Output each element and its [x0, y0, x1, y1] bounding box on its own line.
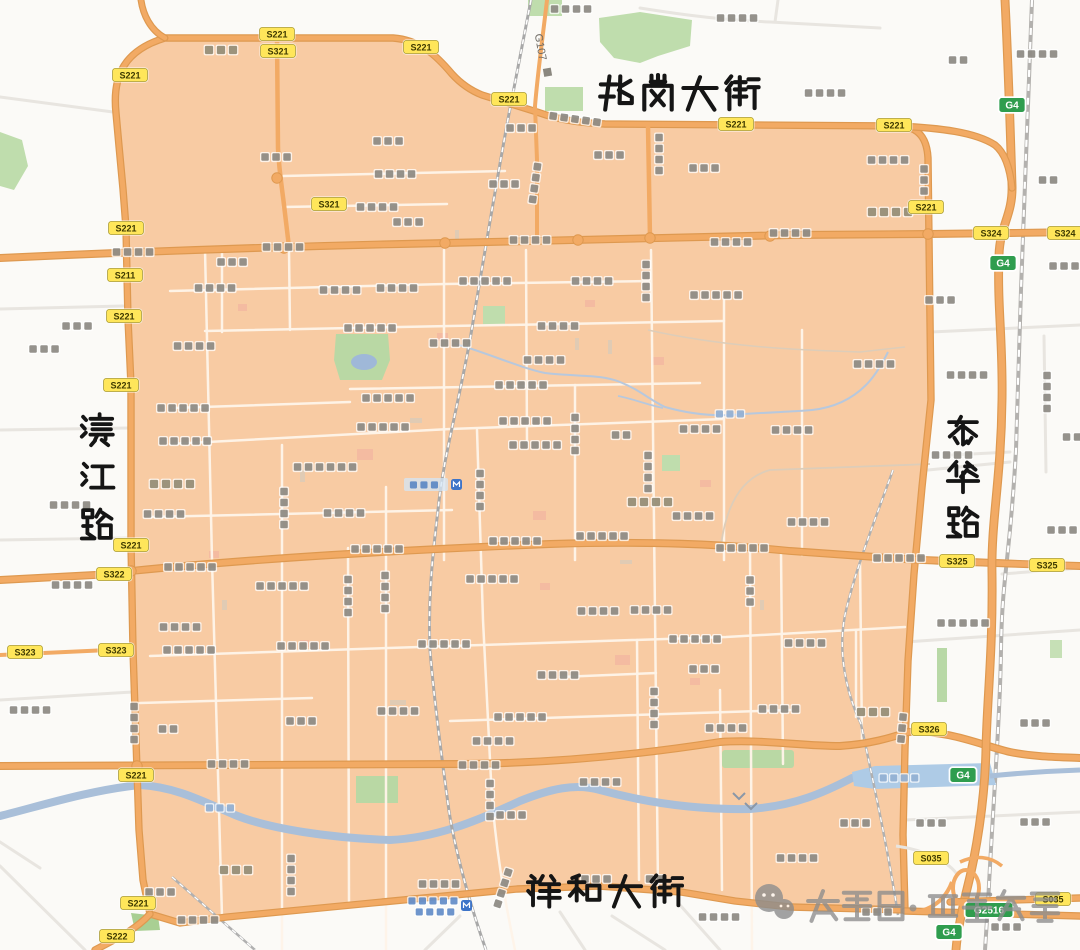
svg-text:S221: S221	[266, 29, 287, 39]
svg-text:S221: S221	[915, 202, 936, 212]
svg-text:S324: S324	[980, 228, 1001, 238]
svg-text:S321: S321	[267, 46, 288, 56]
svg-text:G4: G4	[1005, 101, 1019, 112]
svg-text:S325: S325	[946, 556, 967, 566]
svg-text:S326: S326	[918, 724, 939, 734]
svg-text:S323: S323	[105, 645, 126, 655]
svg-text:G4: G4	[942, 928, 956, 939]
svg-text:S221: S221	[725, 119, 746, 129]
svg-text:G4: G4	[956, 771, 970, 782]
svg-text:G4: G4	[996, 259, 1010, 270]
svg-text:S221: S221	[127, 898, 148, 908]
svg-text:S221: S221	[113, 311, 134, 321]
svg-text:S322: S322	[103, 569, 124, 579]
svg-text:S325: S325	[1036, 560, 1057, 570]
svg-text:S323: S323	[14, 647, 35, 657]
svg-text:S221: S221	[110, 380, 131, 390]
svg-text:S221: S221	[883, 120, 904, 130]
svg-text:S221: S221	[119, 70, 140, 80]
svg-text:S321: S321	[318, 199, 339, 209]
svg-text:S324: S324	[1054, 228, 1075, 238]
svg-text:S035: S035	[920, 853, 941, 863]
svg-text:S211: S211	[115, 270, 136, 280]
svg-text:S221: S221	[115, 223, 136, 233]
svg-text:S222: S222	[106, 931, 127, 941]
svg-text:S221: S221	[125, 770, 146, 780]
svg-text:S221: S221	[410, 42, 431, 52]
svg-text:S221: S221	[120, 540, 141, 550]
svg-text:S221: S221	[498, 94, 519, 104]
